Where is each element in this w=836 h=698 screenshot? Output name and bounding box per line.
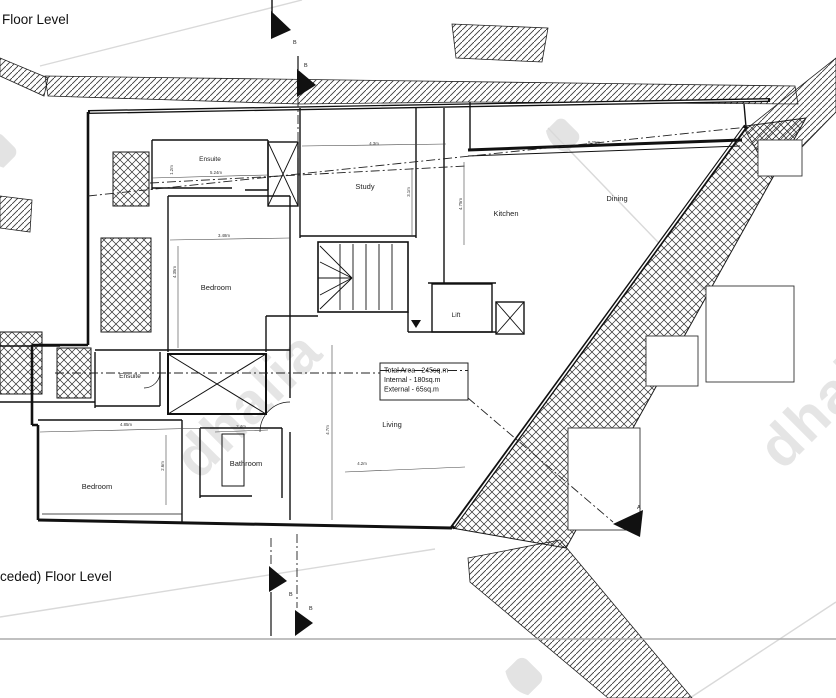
dim-dining-width: 9.25m <box>588 140 600 145</box>
dim-kitchen-depth: 4.75m <box>458 198 463 210</box>
dim-bedroom-lower-depth: 2.6m <box>160 461 165 471</box>
room-label-study: Study <box>355 182 374 191</box>
dim-bedroom-width: 3.48m <box>218 233 230 238</box>
total-area-text: Total Area - 245sq.m <box>384 368 448 375</box>
floor-plan-drawing: dhalia dhalia <box>0 0 836 698</box>
dim-living-width: 4.2m <box>357 461 367 466</box>
area-summary-box: Total Area - 245sq.m Internal - 180sq.m … <box>380 363 468 400</box>
dim-ensuite-width: 5.24m <box>210 170 222 175</box>
stair-direction-arrow-icon <box>411 320 421 328</box>
staircase <box>318 242 421 328</box>
section-marker-b-label: B <box>289 592 293 598</box>
neighbour-structure <box>568 428 640 530</box>
neighbour-structure <box>646 336 698 386</box>
shaft-crosshatch <box>0 152 151 398</box>
room-label-dining: Dining <box>606 194 627 203</box>
terrace-crosshatch <box>452 118 806 548</box>
dhalia-logo-icon <box>493 653 547 698</box>
dim-bathroom-width: 2.4m <box>236 424 246 429</box>
internal-area-text: Internal - 180sq.m <box>384 377 441 384</box>
section-marker-b-label: B <box>304 63 308 69</box>
floor-plan-sheet: dhalia dhalia <box>0 0 836 698</box>
room-label-bedroom-lower: Bedroom <box>82 482 112 491</box>
room-label-lift: Lift <box>452 312 461 319</box>
dim-living-depth: 4.7m <box>325 425 330 435</box>
neighbour-structure <box>706 286 794 382</box>
dhalia-logo-icon <box>0 129 21 178</box>
dim-bedroom-depth: 4.35m <box>172 266 177 278</box>
neighbour-structure <box>758 140 802 176</box>
section-marker-b-bottom-outer: B <box>269 566 293 636</box>
room-label-ensuite-lower: Ensuite <box>119 373 141 380</box>
section-marker-a-label: A <box>637 505 641 511</box>
dim-study-depth: 3.1m <box>406 187 411 197</box>
floor-level-title-top: Floor Level <box>2 12 69 27</box>
dim-study-width: 4.3m <box>369 141 379 146</box>
room-label-living: Living <box>382 420 402 429</box>
section-marker-b-label: B <box>309 606 313 612</box>
room-label-bedroom-upper: Bedroom <box>201 283 231 292</box>
dim-bedroom-lower-width: 4.85m <box>120 422 132 427</box>
floor-level-title-bottom: ceded) Floor Level <box>0 569 112 584</box>
room-label-kitchen: Kitchen <box>493 209 518 218</box>
dim-ensuite-depth: 1.2m <box>169 165 174 175</box>
room-label-ensuite-upper: Ensuite <box>199 156 221 163</box>
section-marker-b-bottom-inner: B <box>295 606 313 636</box>
room-label-bathroom: Bathroom <box>230 459 263 468</box>
external-area-text: External - 65sq.m <box>384 387 439 394</box>
section-marker-b-label: B <box>293 40 297 46</box>
